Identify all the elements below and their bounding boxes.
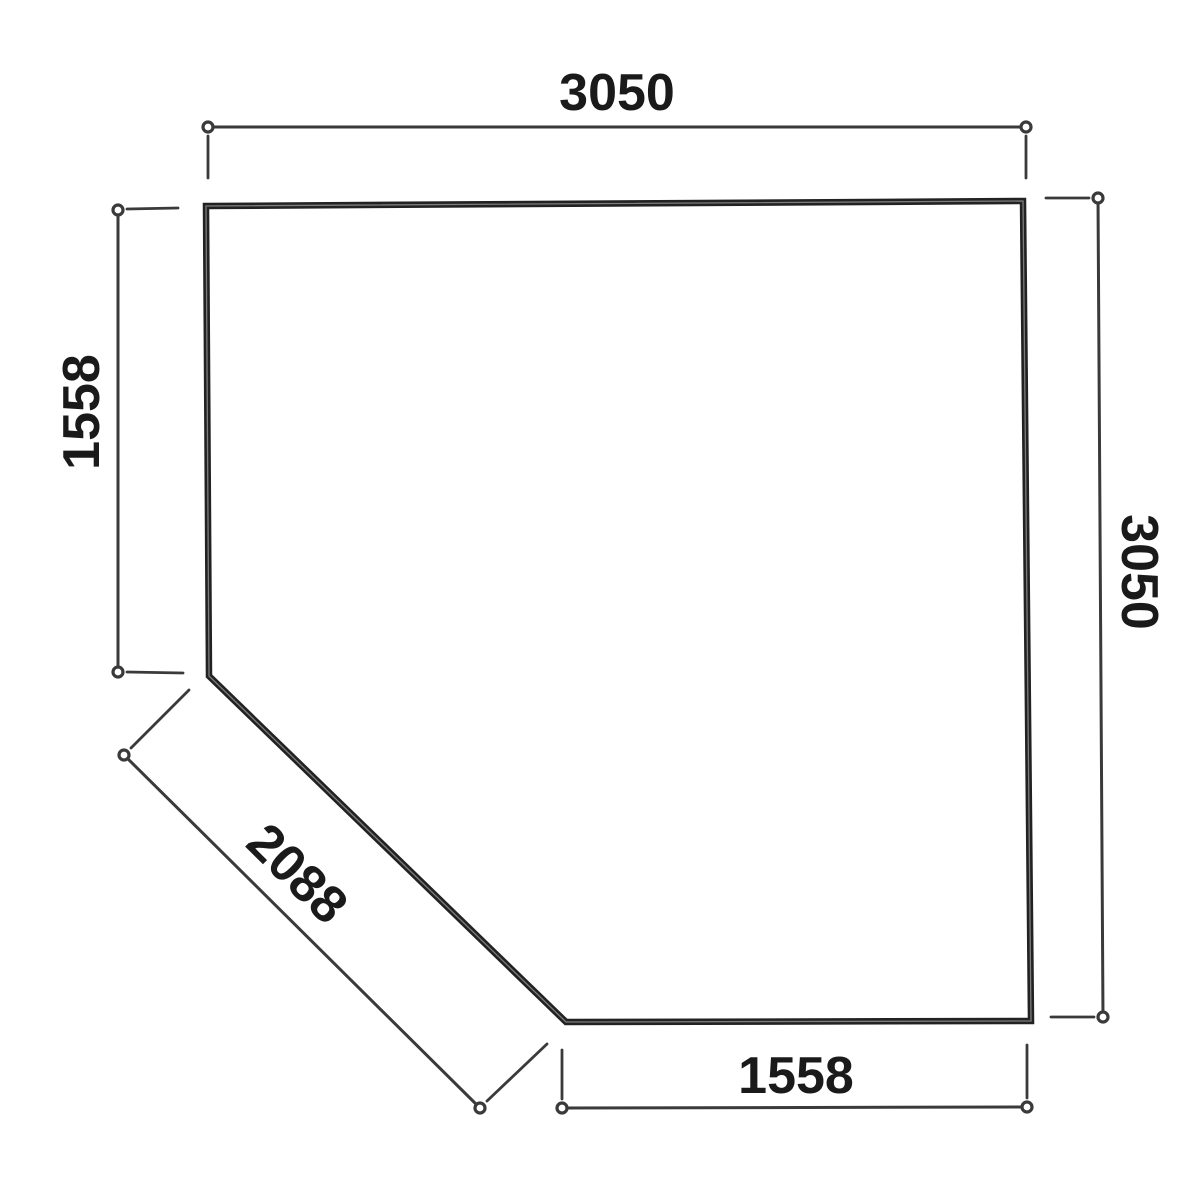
dimension-line [124, 755, 480, 1108]
dimension-label-left: 1558 [53, 354, 111, 470]
dimension-line [1098, 198, 1103, 1017]
dimension-top: 3050 [203, 64, 1031, 178]
dimension-endpoint [557, 1103, 567, 1113]
dimension-endpoint [1093, 193, 1103, 203]
extension-line [127, 208, 178, 209]
dimension-label-bottom: 1558 [738, 1047, 854, 1105]
dimension-bottom: 1558 [557, 1045, 1032, 1113]
dimension-line [562, 1107, 1027, 1108]
dimension-diagonal: 2088 [119, 690, 547, 1113]
dimension-endpoint [113, 667, 123, 677]
dimension-endpoint [113, 205, 123, 215]
extension-line [487, 1044, 547, 1101]
dimension-endpoint [475, 1103, 485, 1113]
drawing-canvas: 3050 1558 3050 1558 [0, 0, 1200, 1200]
dimension-left: 1558 [53, 205, 183, 677]
dimension-label-diagonal: 2088 [235, 813, 358, 936]
dimension-endpoint [1021, 122, 1031, 132]
dimension-right: 3050 [1046, 193, 1168, 1022]
extension-line [131, 690, 189, 748]
dimension-label-top: 3050 [559, 64, 675, 122]
floor-plan-diagram: 3050 1558 3050 1558 [0, 0, 1200, 1200]
dimension-label-right: 3050 [1110, 514, 1168, 630]
dimension-endpoint [1022, 1102, 1032, 1112]
dimension-endpoint [203, 122, 213, 132]
extension-line [127, 672, 183, 673]
dimension-endpoint [1098, 1012, 1108, 1022]
dimension-endpoint [119, 750, 129, 760]
